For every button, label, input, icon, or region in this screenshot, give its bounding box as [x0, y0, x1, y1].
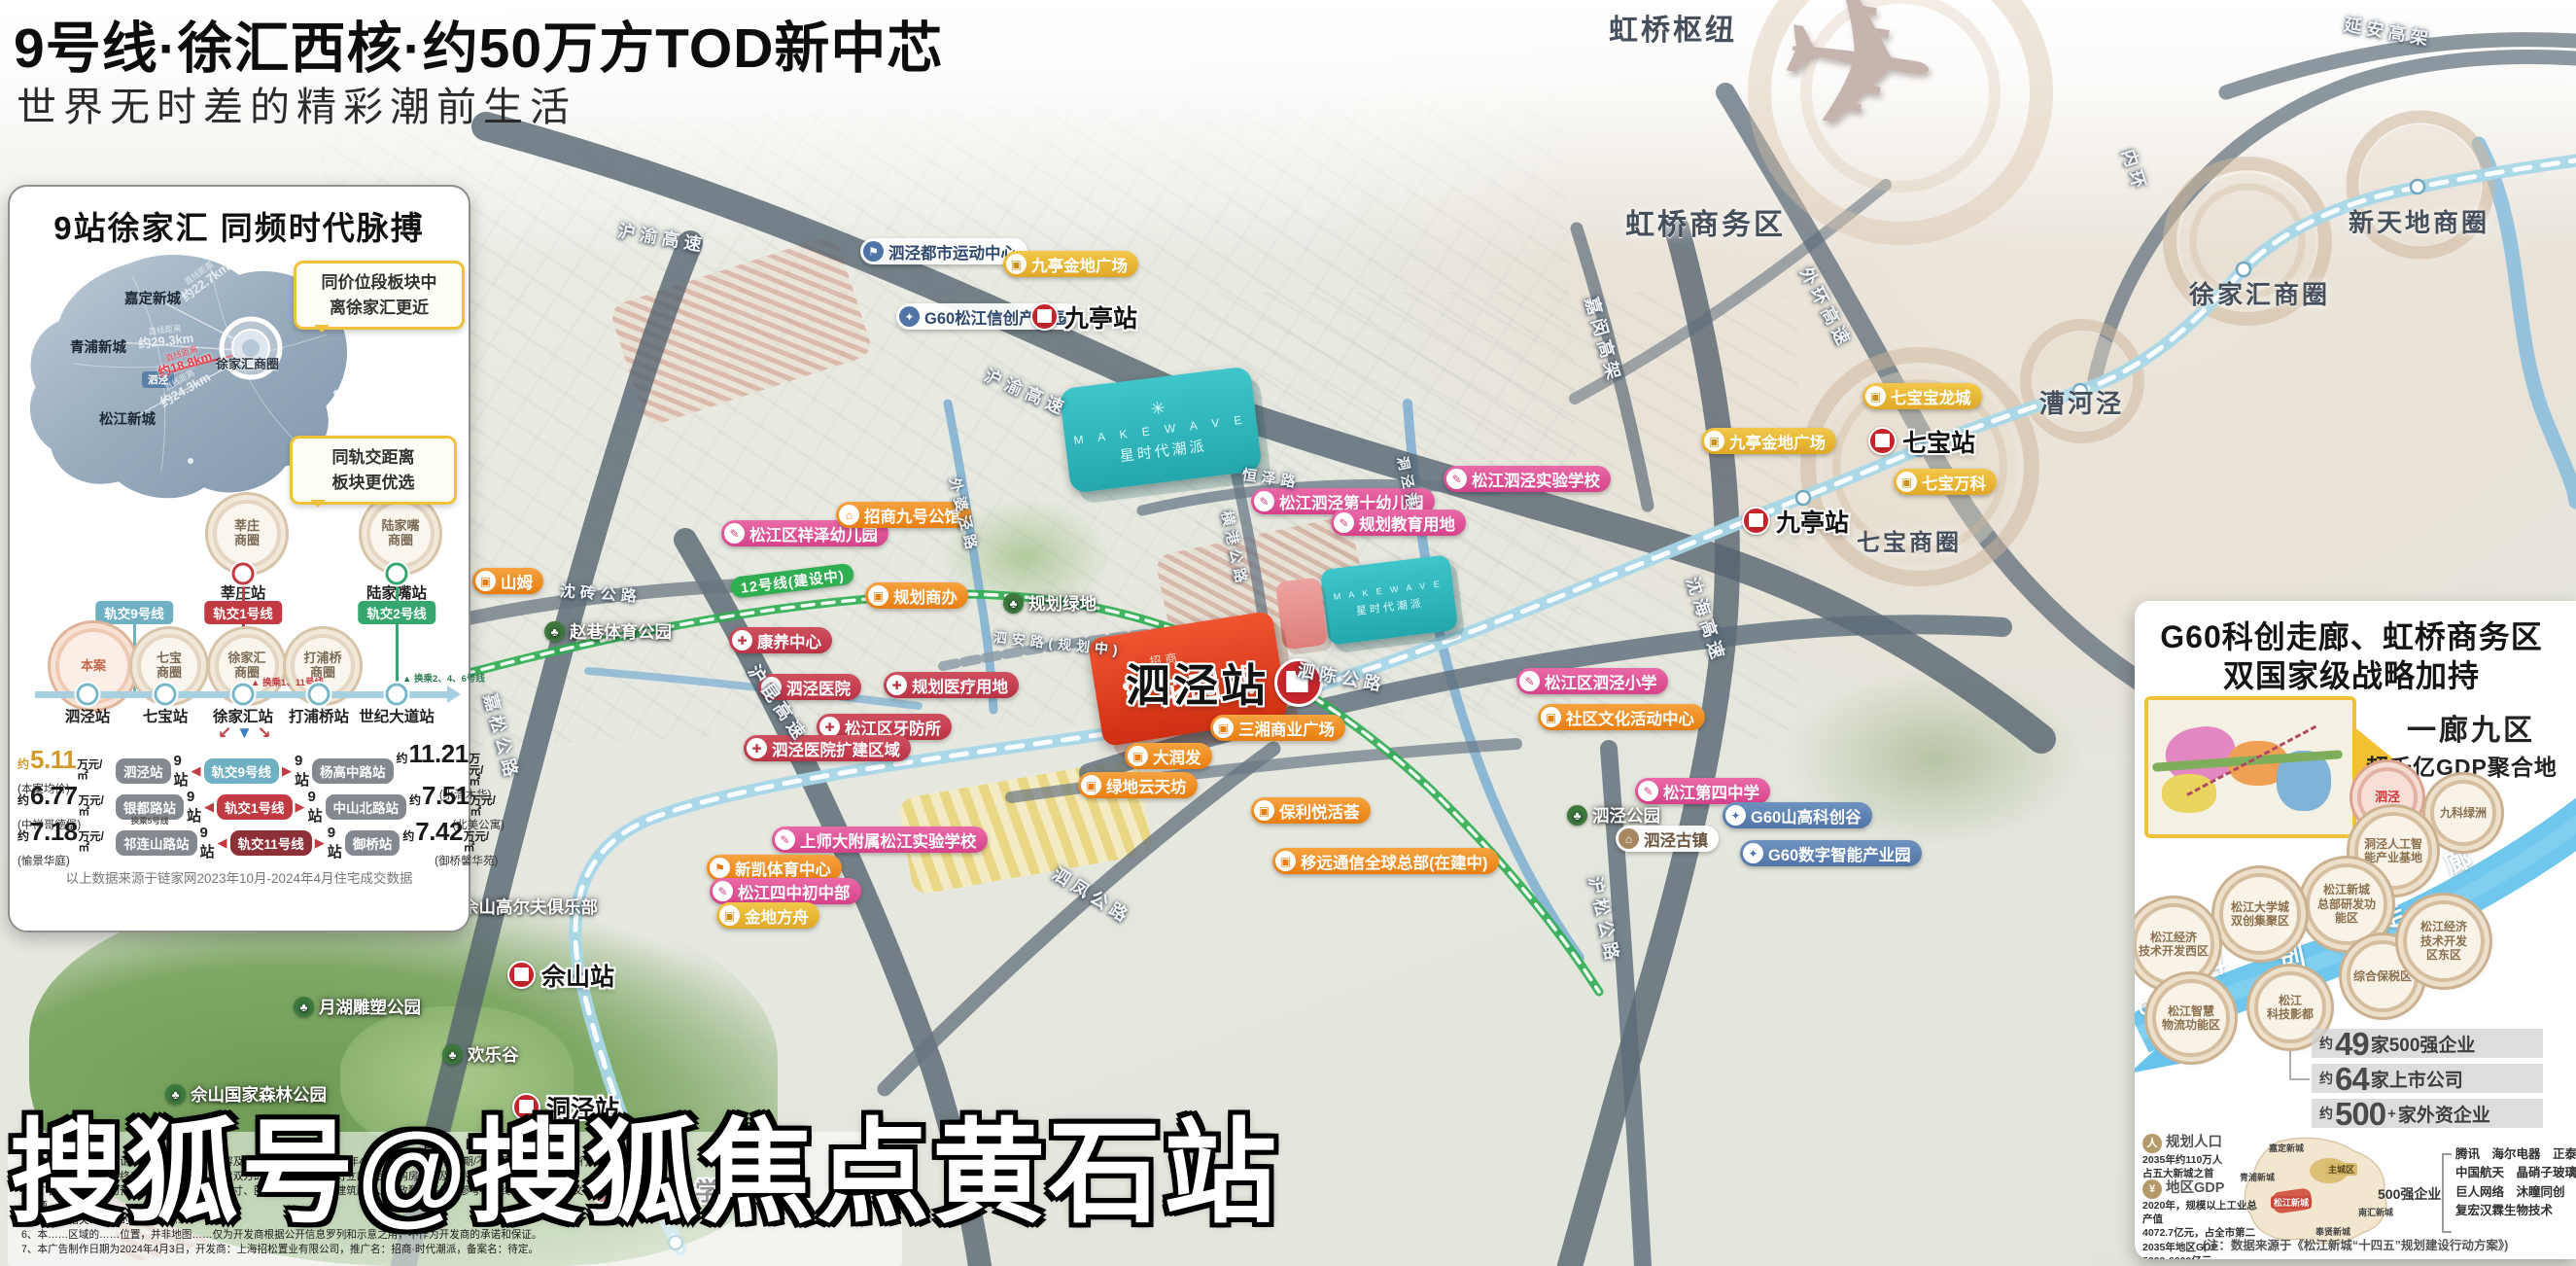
poi-label: 三湘商业广场	[1238, 717, 1335, 740]
metro-dot-icon	[386, 684, 408, 706]
station-pill: 银都路站换乘5号线	[116, 794, 184, 820]
callout-price-band: 同价位段板块中 离徐家汇更近	[294, 261, 465, 330]
station-pill: 御桥站	[345, 830, 400, 856]
company-line: 巨人网络 沐瞳同创	[2455, 1183, 2576, 1202]
poi-icon: ⚑	[710, 858, 730, 878]
arrow-left-icon: ◀	[218, 835, 227, 851]
poi-com: ▣山姆	[472, 568, 543, 594]
poi-label: 松江泗泾实验学校	[1472, 468, 1600, 491]
hops: 9站	[308, 789, 323, 826]
hub-circle: 陆家嘴 商圈	[366, 500, 435, 568]
hops: 9站	[295, 753, 309, 790]
poi-icon: ♣	[294, 997, 314, 1017]
poi-label: 泗泾公园	[1592, 803, 1660, 827]
company-line: 中国航天 晶硝子玻璃 飞科	[2455, 1164, 2576, 1182]
station-name: 泗泾站	[1126, 651, 1269, 715]
station-name: 九亭站	[1776, 504, 1849, 539]
district-label: 虹桥商务区	[1625, 208, 1786, 234]
poi-med: ✚康养中心	[729, 627, 832, 653]
g60-node-circle: 松江经济 技术开发西区	[2135, 903, 2214, 985]
line-pill: 轨交9号线	[204, 758, 280, 784]
poi-icon: ✎	[724, 523, 745, 544]
poi-ind: ✦G60数字智能产业园	[1740, 840, 1922, 866]
data-source-note: 以上数据来源于链家网2023年10月-2024年4月住宅成交数据	[10, 867, 469, 887]
poi-label: 松江四中初中部	[738, 880, 851, 903]
stat-row: 约64家上市公司	[2312, 1064, 2543, 1093]
poi-label: 大润发	[1153, 745, 1201, 768]
poi-icon: ⚑	[863, 241, 884, 262]
top500-companies: 腾讯 海尔电器 正泰电器中国航天 晶硝子玻璃 飞科巨人网络 沐瞳同创复宏汉霖生物…	[2455, 1145, 2576, 1221]
station-name: 泗泾站	[65, 705, 111, 726]
poi-icon: ✎	[775, 829, 795, 850]
five-newtowns-minimap: 嘉定新城青浦新城主城区松江新城奉贤新城南汇新城	[2240, 1134, 2395, 1248]
poi-label: 泗泾古镇	[1644, 827, 1708, 851]
stat-row: 约49家500强企业	[2312, 1029, 2543, 1058]
hops: 9站	[200, 825, 215, 862]
arrow-right-icon: ▶	[282, 763, 292, 779]
poi-label: 七宝宝龙城	[1891, 385, 1971, 408]
road-label: 泗凤公路	[1048, 860, 1137, 930]
station-pill: 泗泾站	[116, 758, 171, 784]
poi-icon: ▣	[1541, 707, 1561, 727]
poi-label: 月湖雕塑公园	[319, 995, 421, 1019]
poi-com: ▣社区文化活动中心	[1538, 704, 1705, 730]
metro-line12-label: 12号线(建设中)	[730, 563, 855, 599]
road-label: 泗安路(规划中)	[992, 623, 1124, 663]
arrow-right-icon: ▶	[296, 799, 305, 815]
poi-label: 招商九号公馆	[864, 504, 960, 527]
panel-footnote: (注：数据来源于《松江新城“十四五”规划建设行动方案》)	[2135, 1235, 2576, 1253]
poi-icon: ▣	[1081, 775, 1101, 795]
poi-icon: ▣	[475, 571, 496, 591]
price-right: 约7.42万元/㎡(御桥馨华苑)	[402, 819, 498, 868]
poi-com: ▣大润发	[1125, 743, 1212, 769]
district-label: 虹桥枢纽	[1609, 14, 1737, 40]
poi-com: ⚑新凯体育中心	[707, 855, 842, 881]
poi-label: 规划绿地	[1028, 591, 1097, 615]
transfer-note: ▲ 换乘2、4、6号线	[402, 671, 485, 685]
panel-title-line2: 双国家级战略加持	[2135, 651, 2568, 696]
diagram-line	[133, 615, 136, 691]
price-left: 约7.18万元/㎡(愉景华庭)	[17, 819, 113, 868]
minimap-city-label: 嘉定新城	[124, 288, 181, 308]
poi-icon: ✚	[747, 738, 767, 758]
line-pill: 轨交11号线	[230, 830, 312, 856]
panel-sub1: 一廊九区	[2407, 706, 2535, 749]
poi-label: 金地方舟	[745, 904, 809, 928]
poi-label: 康养中心	[757, 629, 821, 652]
poi-label: 九亭金地广场	[1031, 253, 1128, 276]
metro-station-label: 泗泾站M	[1126, 669, 1323, 695]
poi-park: ♣月湖雕塑公园	[294, 994, 432, 1020]
poi-icon: ✚	[732, 630, 752, 651]
poi-gold: ▣金地方舟	[716, 902, 819, 929]
company-line: 复宏汉霖生物技术	[2455, 1202, 2576, 1220]
poi-icon: ♣	[1003, 593, 1024, 614]
district-label: 漕河泾	[2039, 389, 2124, 415]
poi-label: 规划教育用地	[1359, 511, 1455, 535]
arrow-left-icon: ◀	[191, 763, 201, 779]
callout-line: 离徐家汇更近	[306, 296, 452, 321]
hops: 9站	[328, 825, 342, 862]
road-label: 沪渝高速	[616, 216, 709, 258]
poi-icon: ▣	[868, 585, 888, 606]
station-name: 九亭站	[1064, 299, 1137, 334]
district-label: 新天地商圈	[2349, 208, 2489, 234]
minimap-city-label: 青浦新城	[70, 336, 126, 357]
station-name: 世纪大道站	[359, 705, 435, 726]
poi-icon: ▣	[1254, 800, 1274, 821]
callout-line: 同轨交距离	[302, 445, 444, 471]
district-label: 徐家汇商圈	[2189, 280, 2330, 306]
poi-icon: ✎	[713, 881, 733, 901]
metro-dot-icon	[155, 684, 177, 706]
poi-icon: ✚	[819, 717, 840, 737]
hops: 9站	[174, 753, 189, 790]
metro-compare-panel: 9站徐家汇 同频时代脉搏	[8, 185, 470, 932]
line-pill: 轨交2号线	[358, 601, 435, 624]
road-label: 沪昆高速	[743, 659, 816, 748]
poi-label: 欢乐谷	[468, 1042, 519, 1067]
arrow-left-icon: ◀	[204, 799, 214, 815]
poster-root: ✈ ✳ M A K E W A V E 星时代潮派 M A K E W A V …	[0, 0, 2576, 1266]
poi-label: 赵巷体育公园	[570, 619, 672, 644]
g60-node-circle: 松江智慧 物流功能区	[2152, 979, 2230, 1057]
line-pill: 轨交1号线	[217, 794, 293, 820]
poi-label: G60数字智能产业园	[1768, 842, 1911, 865]
minimap-xujiahui-label: 徐家汇商圈	[216, 354, 279, 372]
g60-node-circle: 九科绿洲	[2430, 780, 2496, 846]
station-name: 七宝站	[1902, 424, 1975, 459]
road-label: 沈海高速	[1681, 573, 1733, 666]
poi-icon: ✚	[887, 675, 907, 695]
station-pill: 祁连山路站	[116, 830, 197, 856]
poi-park: ♣泗泾公园	[1567, 802, 1671, 828]
road-label: 恒泽路	[1240, 461, 1302, 495]
poi-label: 保利悦活荟	[1279, 799, 1360, 823]
poi-label: 山姆	[501, 570, 533, 593]
poi-sch: ✎松江区泗泾小学	[1516, 668, 1668, 694]
newtown-label: 松江新城	[2271, 1196, 2312, 1209]
metro-logo-icon: M	[507, 961, 536, 989]
poi-icon: ✎	[1638, 781, 1658, 801]
poi-label: 松江第四中学	[1663, 780, 1759, 803]
poi-icon: ✦	[1725, 805, 1746, 826]
poi-gold: ▣七宝万科	[1894, 469, 1997, 495]
hub-circle: 莘庄 商圈	[213, 500, 281, 568]
poi-com: ▣绿地云天坊	[1078, 772, 1198, 798]
metro-dot-icon	[77, 684, 99, 706]
line-pill: 轨交1号线	[204, 601, 282, 624]
poi-com: ▣保利悦活荟	[1251, 797, 1371, 824]
poi-label: 松江区泗泾小学	[1545, 670, 1657, 693]
poi-icon: ▣	[1213, 718, 1234, 738]
poi-sch: ✎松江第四中学	[1635, 778, 1770, 804]
g60-node-circle: 松江大学城 双创集聚区	[2219, 873, 2301, 955]
poi-icon: ✎	[1446, 469, 1467, 489]
poi-icon: ✦	[899, 306, 920, 327]
road-label: 嘉闵高架	[1580, 294, 1629, 387]
disclaimer-line: 7、本广告制作日期为2024年4月3日，开发商：上海招松置业有限公司，推广名：招…	[21, 1243, 888, 1257]
poi-white: ⚑泗泾都市运动中心	[860, 238, 1027, 264]
hops: 9站	[187, 789, 201, 826]
bracket	[2442, 1153, 2452, 1233]
poi-icon: ▣	[719, 905, 740, 926]
poi-med: ✚泗泾医院扩建区域	[744, 735, 911, 761]
station-name: 打浦桥站	[289, 705, 349, 726]
poi-icon: ♣	[544, 621, 565, 642]
poi-label: 上师大附属松江实验学校	[800, 828, 977, 852]
poi-icon: ▣	[1006, 254, 1027, 274]
poi-icon: ▣	[1865, 386, 1886, 406]
poi-label: 七宝万科	[1922, 471, 1986, 494]
poi-house: ⌂泗泾古镇	[1616, 826, 1719, 852]
road-label: 沈砖公路	[559, 576, 643, 608]
metro-station-label: M九亭站	[1742, 508, 1849, 534]
g60-node-circle: 松江经济 技术开发 区东区	[2403, 900, 2485, 982]
pop-block: 人规划人口2035年约110万人占五大新城之首	[2142, 1134, 2257, 1180]
poi-park: ♣欢乐谷	[442, 1041, 530, 1068]
metro-station-label: M九亭站	[1030, 303, 1137, 330]
poi-label: 泗泾都市运动中心	[888, 240, 1017, 264]
poi-com: ▣规划商办	[865, 582, 968, 609]
g60-node-circle: 松江新城 总部研发功 能区	[2306, 863, 2387, 945]
poi-icon: ▣	[1897, 472, 1917, 492]
station-name: 佘山站	[541, 958, 614, 993]
page-subtitle: 世界无时差的精彩潮前生活	[17, 74, 576, 132]
poi-label: 泗泾医院	[786, 676, 851, 699]
top500-label: 500强企业	[2378, 1184, 2441, 1204]
poi-icon: ▣	[1704, 431, 1724, 451]
poi-label: 规划医疗用地	[912, 674, 1008, 697]
poi-park: ♣规划绿地	[1003, 590, 1107, 616]
poi-label: 绿地云天坊	[1106, 774, 1187, 797]
station-pill: 中山北路站	[326, 794, 407, 820]
poi-com: ▣移远通信全球总部(在建中)	[1272, 848, 1499, 874]
callout-line: 板块更优选	[302, 471, 444, 496]
poi-icon: ▣	[1128, 746, 1148, 766]
direction-arrows-icon: ↙ ▼ ↘	[218, 723, 271, 743]
metro-logo-icon: M	[1030, 302, 1059, 331]
station-name: 七宝站	[143, 705, 189, 726]
price-compare-row: 约7.18万元/㎡(愉景华庭)祁连山路站9站◀轨交11号线▶9站御桥站约7.42…	[17, 826, 461, 860]
poi-label: G60山高科创谷	[1751, 804, 1862, 827]
poi-gold: ▣七宝宝龙城	[1862, 383, 1982, 409]
g60-strategy-panel: G60科创走廊、虹桥商务区 双国家级战略加持 一廊九区 超千亿GDP聚合地 廊走…	[2135, 601, 2576, 1259]
diagram-line	[396, 583, 399, 691]
road-label: 横港公路	[1214, 509, 1256, 590]
poi-sch: ✎规划教育用地	[1331, 510, 1466, 536]
road-label: 内环	[2116, 145, 2155, 195]
road-label: 延安高架	[2343, 10, 2435, 52]
stat-row: 约500+家外资企业	[2312, 1099, 2543, 1128]
poi-icon: ⌂	[1619, 828, 1639, 849]
metro-dot-icon	[386, 563, 408, 585]
metro-logo-icon: M	[1742, 507, 1770, 535]
poi-label: 规划商办	[893, 584, 957, 608]
poi-label: 九亭金地广场	[1729, 430, 1826, 453]
newtown-label: 嘉定新城	[2269, 1142, 2304, 1154]
road-label: 外环高速	[1794, 262, 1860, 353]
poi-icon: ✦	[1743, 843, 1763, 863]
newtown-label: 主城区	[2325, 1163, 2357, 1176]
metro-logo-icon: M	[1868, 427, 1897, 455]
poi-com: ▣三湘商业广场	[1210, 715, 1345, 741]
poi-icon: ⌂	[839, 505, 859, 525]
newtown-label: 南汇新城	[2358, 1206, 2393, 1218]
metro-station-label: M七宝站	[1868, 428, 1975, 454]
poi-sch: ✎松江泗泾实验学校	[1444, 466, 1611, 492]
poi-label: 佘山高尔夫俱乐部	[462, 895, 598, 919]
transfer-sub: 换乘5号线	[131, 815, 169, 826]
poi-sch: ✎松江四中初中部	[710, 878, 861, 904]
poi-park: ♣赵巷体育公园	[544, 618, 682, 645]
page-title: 9号线·徐汇西核·约50万方TOD新中芯	[14, 4, 943, 84]
poi-label: 新凯体育中心	[735, 857, 831, 880]
poi-icon: ♣	[442, 1044, 463, 1065]
metro-dot-icon	[308, 684, 331, 706]
watermark: 搜狐号@搜狐焦点黄石站	[10, 1081, 1279, 1245]
company-line: 腾讯 海尔电器 正泰电器	[2455, 1145, 2576, 1164]
poi-sch: ✎上师大附属松江实验学校	[772, 826, 988, 853]
poi-icon: ✎	[1519, 671, 1540, 691]
poi-med: ✚规划医疗用地	[884, 672, 1019, 698]
poi-gold: ▣九亭金地广场	[1003, 251, 1138, 277]
callout-same-distance: 同轨交距离 板块更优选	[290, 436, 457, 505]
poi-label: 社区文化活动中心	[1566, 706, 1694, 729]
poi-icon: ✎	[1254, 491, 1274, 511]
poi-ind: ✦G60山高科创谷	[1723, 802, 1872, 828]
district-label: 七宝商圈	[1857, 527, 1962, 553]
metro-dot-icon	[232, 684, 255, 706]
poi-label: 移远通信全球总部(在建中)	[1301, 850, 1488, 873]
poi-icon: ♣	[1567, 805, 1587, 826]
metro-station-label: M佘山站	[507, 962, 614, 988]
station-pill: 杨高中路站	[312, 758, 394, 784]
panel-title: 9站徐家汇 同频时代脉搏	[10, 202, 469, 249]
metro-dot-icon	[232, 563, 255, 585]
road-label: 沪渝高速	[981, 361, 1073, 421]
callout-line: 同价位段板块中	[306, 270, 452, 296]
poi-icon: ✎	[1334, 512, 1354, 533]
minimap-city-label: 松江新城	[99, 408, 156, 429]
line-pill: 轨交9号线	[95, 601, 173, 624]
planning-map-inset	[2144, 696, 2356, 838]
poi-gold: ▣九亭金地广场	[1701, 428, 1836, 454]
arrow-right-icon: ▶	[315, 835, 325, 851]
road-label: 沪松公路	[1584, 874, 1628, 967]
poi-icon: ▣	[1275, 851, 1296, 871]
